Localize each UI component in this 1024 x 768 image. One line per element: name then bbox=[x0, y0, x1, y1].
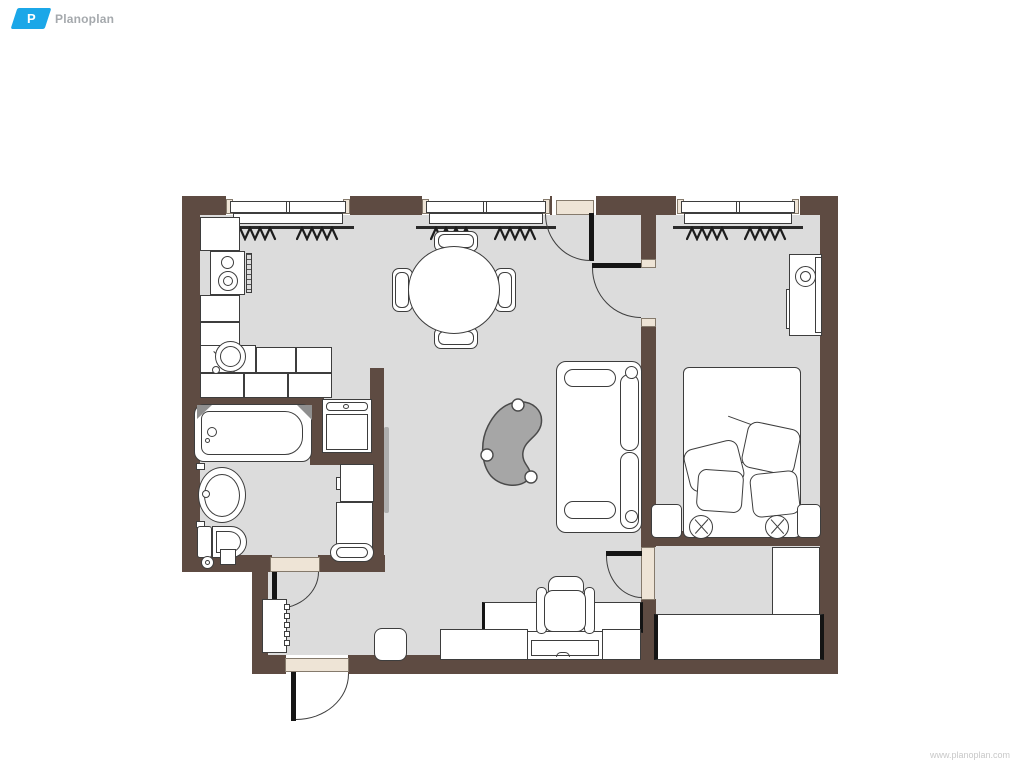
curtain-icon bbox=[686, 226, 730, 241]
window2-mullion bbox=[483, 201, 487, 213]
washing-machine-body bbox=[326, 414, 368, 450]
dining-chair-cushion bbox=[395, 272, 409, 308]
sofa-back-cushion bbox=[620, 374, 639, 451]
bathroom-sink-tap bbox=[202, 490, 210, 498]
washing-machine-knob bbox=[343, 404, 349, 409]
shoe-cabinet-knob bbox=[284, 622, 290, 628]
entrance-door-sill bbox=[285, 658, 349, 672]
shoe-cabinet-knob bbox=[284, 613, 290, 619]
shoe-cabinet-knob bbox=[284, 640, 290, 646]
sink-wall-tab bbox=[196, 463, 205, 470]
kitchen-counter bbox=[296, 347, 332, 373]
wall-right bbox=[820, 196, 838, 674]
window3-sill bbox=[684, 213, 792, 224]
window1-sill bbox=[233, 213, 343, 224]
bathroom-cabinet-knob bbox=[336, 477, 341, 490]
window1-mullion bbox=[286, 201, 290, 213]
balcony-room-door-sill bbox=[641, 547, 655, 600]
sofa-armrest bbox=[564, 501, 616, 519]
bed-wheel bbox=[689, 515, 713, 539]
desk-drawer-handle bbox=[556, 652, 570, 657]
outside-notch bbox=[182, 572, 252, 674]
bedroom-door-post-top bbox=[641, 259, 656, 268]
sofa-armrest bbox=[564, 369, 616, 387]
entrance-door-arc bbox=[296, 674, 349, 720]
bathroom-cabinet bbox=[340, 464, 374, 502]
bedroom-door-post-bottom bbox=[641, 318, 656, 327]
bed-pillow bbox=[749, 470, 801, 519]
bathroom-door-sill bbox=[270, 557, 320, 572]
dining-table bbox=[408, 246, 500, 334]
kitchen-cabinet bbox=[200, 295, 240, 322]
kitchen-cabinet bbox=[200, 217, 240, 251]
tv-icon-inner bbox=[800, 271, 811, 282]
kitchen-counter bbox=[244, 373, 288, 398]
bed-pillow bbox=[696, 468, 745, 513]
curtain-icon bbox=[234, 226, 278, 241]
coffee-table bbox=[478, 398, 550, 488]
window2-sill bbox=[429, 213, 543, 224]
stove-burner-large-inner bbox=[223, 276, 233, 286]
balcony-wardrobe bbox=[654, 614, 824, 660]
curtain-icon bbox=[494, 226, 538, 241]
logo-initial: P bbox=[27, 11, 36, 26]
pouf bbox=[374, 628, 407, 661]
bathtub-drain bbox=[205, 438, 210, 443]
kitchen-sink-basin bbox=[220, 346, 241, 367]
kitchen-counter bbox=[288, 373, 332, 398]
balcony-cabinet bbox=[772, 547, 820, 615]
bathroom-bin bbox=[220, 549, 236, 565]
curtain-icon bbox=[296, 226, 340, 241]
curtain-icon bbox=[744, 226, 788, 241]
bathtub-tap bbox=[207, 427, 217, 437]
shoe-cabinet-knob bbox=[284, 631, 290, 637]
wall-left bbox=[182, 196, 200, 572]
nightstand bbox=[797, 504, 821, 538]
towel-radiator-inner bbox=[336, 547, 368, 558]
wall-mirror bbox=[384, 427, 389, 513]
bathroom-low-cabinet bbox=[336, 502, 373, 548]
desk-side-cabinet bbox=[602, 629, 641, 660]
toilet-brush-inner bbox=[205, 560, 210, 565]
planoplan-logo-icon: P bbox=[11, 8, 52, 29]
tv-unit-handle bbox=[786, 289, 790, 329]
planoplan-logo[interactable]: P Planoplan bbox=[14, 8, 114, 29]
floor-plan bbox=[0, 0, 1024, 768]
office-chair-seat bbox=[544, 590, 586, 632]
toilet-tank bbox=[197, 526, 212, 558]
kitchen-counter bbox=[200, 373, 244, 398]
stove-burner-small bbox=[221, 256, 234, 269]
nightstand bbox=[651, 504, 682, 538]
sofa-foot bbox=[625, 366, 638, 379]
logo-brand-text: Planoplan bbox=[55, 12, 114, 26]
tv-unit-panel bbox=[815, 257, 822, 333]
kitchen-counter bbox=[256, 347, 296, 373]
watermark-link[interactable]: www.planoplan.com bbox=[930, 750, 1010, 760]
shoe-cabinet-knob bbox=[284, 604, 290, 610]
sofa-foot bbox=[625, 510, 638, 523]
desk-side-cabinet bbox=[440, 629, 528, 660]
bed-wheel bbox=[765, 515, 789, 539]
oven-handle bbox=[246, 253, 252, 293]
dining-chair-cushion bbox=[498, 272, 512, 308]
window3-mullion bbox=[736, 201, 740, 213]
